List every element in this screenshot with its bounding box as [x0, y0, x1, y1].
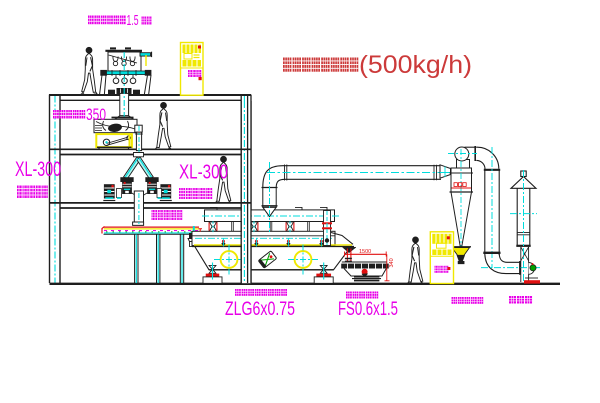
- svg-text:XL-300: XL-300: [15, 158, 61, 181]
- svg-text:1.5: 1.5: [127, 12, 139, 29]
- svg-text:(500kg/h): (500kg/h): [359, 51, 472, 79]
- svg-text:340: 340: [389, 258, 395, 267]
- svg-text:1500: 1500: [359, 249, 371, 255]
- svg-text:XL-300: XL-300: [179, 162, 228, 184]
- svg-text:ZLG6x0.75: ZLG6x0.75: [225, 299, 295, 320]
- svg-text:FS0.6x1.5: FS0.6x1.5: [338, 299, 398, 320]
- svg-text:350: 350: [86, 105, 106, 124]
